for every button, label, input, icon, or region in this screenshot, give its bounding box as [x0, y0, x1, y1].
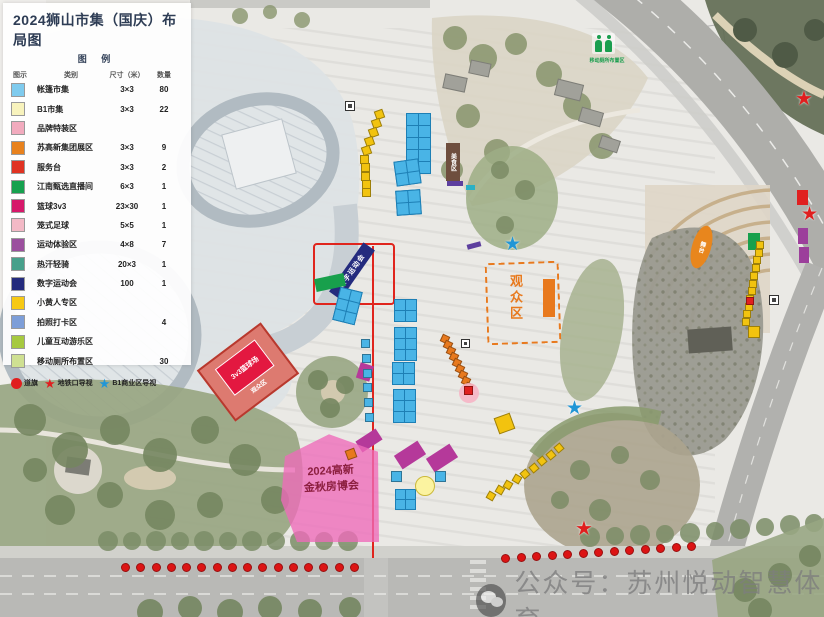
b1-sign-star: ★: [504, 235, 521, 254]
legend-category: 品牌特装区: [37, 123, 105, 134]
road-flag-dots: [289, 563, 298, 572]
stage-right: 舞台: [686, 223, 716, 271]
legend-swatch: [11, 218, 25, 232]
tent-block: [394, 299, 417, 322]
legend-swatch: [11, 335, 25, 349]
legend-row: 运动体验区4×87: [3, 235, 191, 254]
legend-qty: 1: [149, 182, 179, 191]
road-flag-dots: [594, 548, 603, 557]
zone-rect: [799, 247, 809, 263]
tent-cell: [405, 401, 415, 411]
legend-qty: 9: [149, 143, 179, 152]
tent-cell: [406, 490, 415, 499]
legend-row: 移动厕所布置区30: [3, 351, 191, 370]
tent-block: [395, 189, 422, 216]
tent-cell: [407, 138, 418, 149]
tent-cell: [419, 162, 430, 173]
road-flag-dots: [213, 563, 222, 572]
toilet-label: 移动厕所布置区: [576, 57, 638, 64]
legend-symbols: 道旗★地铁口导视★B1商业区导视: [11, 377, 191, 390]
legend-swatch: [11, 238, 25, 252]
legend-row: 品牌特装区: [3, 119, 191, 138]
flag-dot-icon: [11, 378, 22, 389]
tent-cell: [396, 173, 408, 185]
tent: [748, 326, 760, 338]
legend-subtitle: 图 例: [3, 52, 191, 65]
map-icon: [461, 339, 470, 348]
tent-cell: [396, 191, 408, 203]
zone-label: 舞台: [696, 240, 708, 254]
tent: [363, 383, 372, 392]
zone-rect: [466, 185, 475, 190]
tent: [528, 462, 539, 473]
legend-row: 热汗轻骑20×31: [3, 255, 191, 274]
tent: [545, 449, 556, 460]
tent-cell: [419, 126, 430, 137]
zone-rect: [447, 181, 463, 186]
zone-rect: [798, 228, 808, 244]
road-flag-dots: [304, 563, 313, 572]
legend-swatch: [11, 296, 25, 310]
tent-block: [392, 362, 415, 385]
watermark-text: 公众号：苏州悦动智慧体育: [514, 563, 824, 617]
legend-header: 尺寸（米）: [105, 70, 149, 80]
legend-swatch: [11, 180, 25, 194]
tent: [435, 471, 446, 482]
metro-sign-star: ★: [795, 88, 813, 108]
legend-category: 热汗轻骑: [37, 259, 105, 270]
road-flag-dots: [274, 563, 283, 572]
tent-cell: [395, 300, 405, 310]
tent-cell: [395, 350, 405, 360]
metro-sign-star: ★: [575, 518, 593, 538]
tent-cell: [419, 150, 430, 161]
court-3v3: 3v3篮球场观众区: [197, 322, 299, 421]
legend-row: 篮球3v323×301: [3, 196, 191, 215]
star-icon: ★: [99, 377, 111, 390]
road-flag-dots: [641, 545, 650, 554]
legend-category: 苏高新集团展区: [37, 142, 105, 153]
audience-area-label: 观众区: [506, 274, 525, 322]
zone-rect: [394, 441, 426, 470]
legend-row: 拍照打卡区4: [3, 313, 191, 332]
tent-cell: [406, 300, 416, 310]
tent: [361, 339, 370, 348]
map-icon: [345, 101, 355, 111]
tent: [363, 369, 372, 378]
zone-rect: [467, 241, 482, 249]
court-3v3-label: 3v3篮球场: [215, 340, 274, 396]
tent-block: [395, 489, 416, 510]
tent-block: [393, 389, 416, 423]
tent: [362, 188, 371, 197]
legend-headers: 图示类别尺寸（米）数量: [3, 70, 191, 80]
legend-symbol-label: 道旗: [24, 378, 38, 388]
legend-symbol-label: 地铁口导视: [58, 378, 93, 388]
tent-cell: [395, 311, 405, 321]
legend-size: 20×3: [105, 260, 149, 269]
legend-qty: 22: [149, 105, 179, 114]
legend-row: 帐篷市集3×380: [3, 80, 191, 99]
road-flag-dots: [197, 563, 206, 572]
legend-symbol-flag: 道旗: [11, 378, 38, 389]
tent-cell: [394, 401, 404, 411]
wechat-icon: [476, 584, 506, 617]
legend-category: 运动体验区: [37, 239, 105, 250]
tent-cell: [395, 339, 405, 349]
legend-category: 儿童互动游乐区: [37, 336, 105, 347]
legend-size: 6×3: [105, 182, 149, 191]
legend-swatch: [11, 277, 25, 291]
legend-row: 笼式足球5×51: [3, 216, 191, 235]
tent-cell: [409, 202, 421, 214]
legend-qty: 1: [149, 279, 179, 288]
legend-swatch: [11, 315, 25, 329]
legend-category: 笼式足球: [37, 220, 105, 231]
legend-symbol-star: ★地铁口导视: [44, 377, 93, 390]
tent-cell: [405, 412, 415, 422]
road-flag-dots: [167, 563, 176, 572]
legend-row: 服务台3×32: [3, 158, 191, 177]
road-flag-dots: [687, 542, 696, 551]
tent-cell: [407, 114, 418, 125]
person-icon: [605, 40, 612, 52]
legend-size: 4×8: [105, 240, 149, 249]
tent: [746, 297, 754, 305]
tent-cell: [395, 328, 405, 338]
legend-row: 江南甄选直播间6×31: [3, 177, 191, 196]
legend-panel: 2024狮山市集（国庆）布局图 图 例 图示类别尺寸（米）数量 帐篷市集3×38…: [3, 3, 191, 365]
road-flag-dots: [672, 543, 681, 552]
legend-qty: 4: [149, 318, 179, 327]
legend-category: B1市集: [37, 104, 105, 115]
legend-swatch: [11, 257, 25, 271]
road-flag-dots: [563, 550, 572, 559]
tent-cell: [393, 363, 403, 373]
metro-sign-star: ★: [801, 205, 818, 224]
road-flag-dots: [258, 563, 267, 572]
tent: [742, 318, 750, 326]
legend-qty: 30: [149, 357, 179, 366]
legend-row: 儿童互动游乐区: [3, 332, 191, 351]
tent-cell: [397, 203, 409, 215]
road-flag-dots: [136, 563, 145, 572]
legend-swatch: [11, 102, 25, 116]
legend-size: 3×3: [105, 105, 149, 114]
legend-swatch: [11, 83, 25, 97]
tent-cell: [404, 374, 414, 384]
food-zone-sign: 美食区: [446, 143, 460, 181]
round-marker: [415, 476, 435, 496]
watermark: 公众号：苏州悦动智慧体育: [476, 563, 824, 617]
road-flag-dots: [350, 563, 359, 572]
legend-swatch: [11, 121, 25, 135]
legend-category: 江南甄选直播间: [37, 181, 105, 192]
tent: [365, 413, 374, 422]
tent-cell: [406, 500, 415, 509]
road-flag-dots: [228, 563, 237, 572]
legend-category: 数字运动会: [37, 278, 105, 289]
road-flag-dots: [610, 547, 619, 556]
road-flag-dots: [319, 563, 328, 572]
legend-rows: 帐篷市集3×380B1市集3×322品牌特装区苏高新集团展区3×39服务台3×3…: [3, 80, 191, 371]
star-icon: ★: [44, 377, 56, 390]
legend-size: 23×30: [105, 202, 149, 211]
legend-header: 数量: [149, 70, 179, 80]
tent-cell: [406, 339, 416, 349]
road-flag-dots: [182, 563, 191, 572]
road-flag-dots: [243, 563, 252, 572]
tent-cell: [404, 363, 414, 373]
road-flag-dots: [548, 551, 557, 560]
tent-cell: [406, 311, 416, 321]
road-flag-dots: [121, 563, 130, 572]
legend-qty: 1: [149, 260, 179, 269]
stage-strip: [543, 279, 555, 317]
tent-block: [393, 158, 421, 186]
zone-rect: [426, 444, 458, 473]
legend-category: 移动厕所布置区: [37, 356, 105, 367]
tent-cell: [406, 328, 416, 338]
tent-cell: [407, 126, 418, 137]
legend-header: 图示: [3, 70, 37, 80]
legend-size: 5×5: [105, 221, 149, 230]
tent-cell: [394, 390, 404, 400]
layout-map-canvas: 数字运动会美食区3v3篮球场观众区观众区舞台2024高新 金秋房博会★★★★★移…: [0, 0, 824, 617]
legend-swatch: [11, 354, 25, 368]
legend-category: 篮球3v3: [37, 201, 105, 212]
tent: [362, 354, 371, 363]
tent-cell: [406, 350, 416, 360]
tent-block: [394, 327, 417, 361]
road-flag-dots: [656, 544, 665, 553]
road-flag-dots: [579, 549, 588, 558]
tent-cell: [396, 490, 405, 499]
tent-cell: [394, 412, 404, 422]
legend-symbol-label: B1商业区导视: [112, 378, 156, 388]
tent: [536, 455, 547, 466]
legend-category: 服务台: [37, 162, 105, 173]
legend-qty: 1: [149, 202, 179, 211]
legend-symbol-star: ★B1商业区导视: [99, 377, 157, 390]
tent-cell: [408, 190, 420, 202]
tent-cell: [395, 161, 407, 173]
legend-row: 小黄人专区: [3, 293, 191, 312]
b1-sign-star: ★: [566, 399, 583, 418]
tent-cell: [344, 312, 356, 324]
person-icon: [595, 40, 602, 52]
tent-cell: [393, 374, 403, 384]
tent-cell: [396, 500, 405, 509]
legend-row: B1市集3×322: [3, 99, 191, 118]
legend-category: 小黄人专区: [37, 297, 105, 308]
expo-label: 2024高新 金秋房博会: [282, 460, 380, 497]
legend-category: 帐篷市集: [37, 84, 105, 95]
legend-size: 3×3: [105, 143, 149, 152]
legend-qty: 80: [149, 85, 179, 94]
tent: [364, 398, 373, 407]
road-flag-dots: [335, 563, 344, 572]
road-flag-dots: [625, 546, 634, 555]
legend-swatch: [11, 141, 25, 155]
page-title: 2024狮山市集（国庆）布局图: [3, 3, 191, 50]
zone-label: 美食区: [449, 153, 458, 171]
legend-qty: 7: [149, 240, 179, 249]
legend-size: 100: [105, 279, 149, 288]
legend-swatch: [11, 199, 25, 213]
tent-cell: [405, 390, 415, 400]
road-flag-dots: [532, 552, 541, 561]
legend-qty: 2: [149, 163, 179, 172]
tent-cell: [406, 160, 418, 172]
tent: [391, 471, 402, 482]
legend-size: 3×3: [105, 85, 149, 94]
tent-cell: [419, 114, 430, 125]
legend-qty: 1: [149, 221, 179, 230]
tent-cell: [419, 138, 430, 149]
tent: [553, 442, 564, 453]
legend-category: 拍照打卡区: [37, 317, 105, 328]
legend-row: 苏高新集团展区3×39: [3, 138, 191, 157]
legend-row: 数字运动会1001: [3, 274, 191, 293]
tent: [464, 386, 473, 395]
legend-swatch: [11, 160, 25, 174]
legend-header: 类别: [37, 70, 105, 80]
toilet-icon: [592, 33, 615, 54]
road-flag-dots: [501, 554, 510, 563]
legend-size: 3×3: [105, 163, 149, 172]
tent-cell: [408, 171, 420, 183]
road-flag-dots: [517, 553, 526, 562]
tent: [494, 413, 516, 435]
map-icon: [769, 295, 779, 305]
road-flag-dots: [152, 563, 161, 572]
